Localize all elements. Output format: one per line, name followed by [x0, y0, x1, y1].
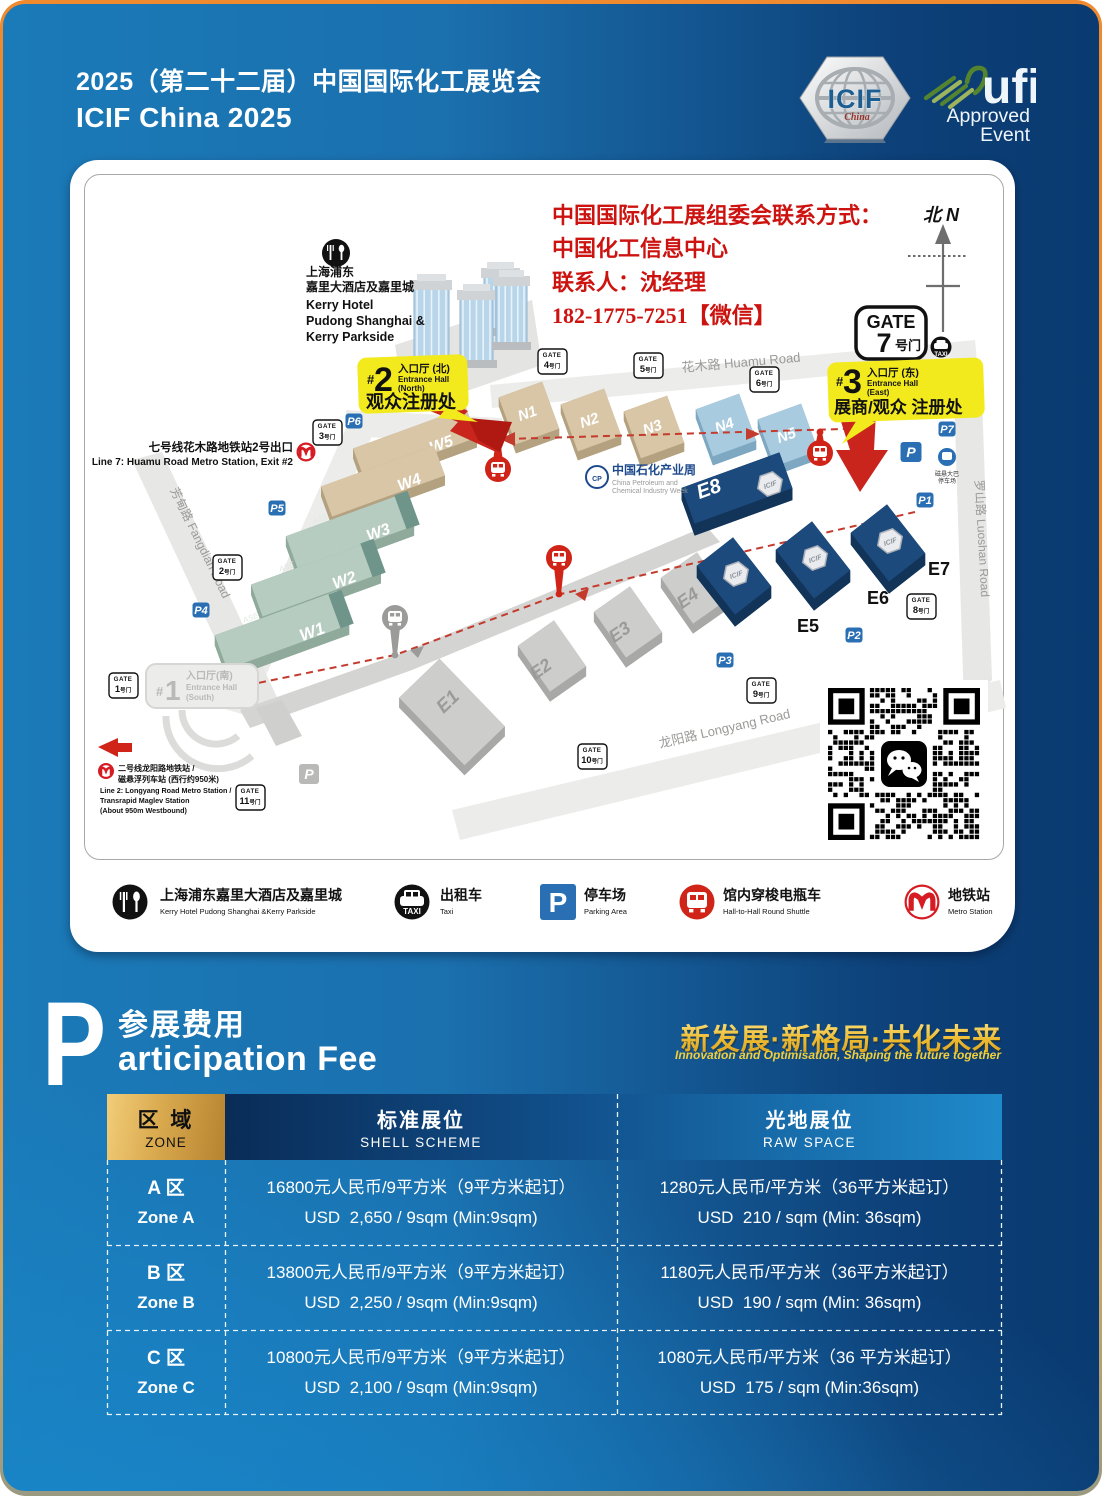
svg-text:ICIF: ICIF [828, 84, 883, 114]
svg-text:号门: 号门 [895, 338, 921, 353]
svg-text:Metro Station: Metro Station [948, 907, 993, 916]
svg-text:北 N: 北 N [923, 205, 960, 225]
svg-text:GATE: GATE [639, 356, 658, 363]
svg-text:Line 7: Huamu Road Metro Stati: Line 7: Huamu Road Metro Station, Exit #… [92, 457, 294, 468]
svg-text:#: # [156, 684, 164, 699]
svg-text:E7: E7 [928, 559, 950, 579]
svg-text:Pudong Shanghai &: Pudong Shanghai & [306, 314, 425, 328]
svg-text:P4: P4 [194, 605, 207, 617]
svg-text:TAXI: TAXI [403, 907, 421, 916]
svg-text:Kerry Hotel Pudong Shanghai &K: Kerry Hotel Pudong Shanghai &Kerry Parks… [160, 907, 316, 916]
svg-text:Kerry Hotel: Kerry Hotel [306, 298, 373, 312]
svg-text:Entrance Hall: Entrance Hall [867, 379, 918, 388]
svg-text:P5: P5 [270, 503, 284, 515]
svg-text:中国化工信息中心: 中国化工信息中心 [552, 236, 728, 261]
svg-text:GATE: GATE [752, 681, 771, 688]
svg-text:Entrance Hall: Entrance Hall [398, 375, 449, 384]
svg-text:磁悬浮列车站 (西行约950米): 磁悬浮列车站 (西行约950米) [118, 774, 219, 784]
svg-text:GATE: GATE [755, 370, 774, 377]
svg-text:P: P [304, 766, 314, 782]
svg-text:GATE: GATE [218, 558, 237, 565]
svg-text:Hall-to-Hall Round Shuttle: Hall-to-Hall Round Shuttle [723, 907, 810, 916]
svg-text:E5: E5 [797, 616, 819, 636]
svg-text:GATE: GATE [583, 747, 602, 754]
svg-text:观众注册处: 观众注册处 [366, 391, 457, 412]
svg-text:(About 950m Westbound): (About 950m Westbound) [100, 806, 188, 815]
svg-text:3: 3 [843, 363, 862, 401]
svg-text:嘉里大酒店及嘉里城: 嘉里大酒店及嘉里城 [305, 279, 414, 294]
svg-text:CP: CP [592, 476, 602, 483]
svg-text:馆内穿梭电瓶车: 馆内穿梭电瓶车 [723, 887, 821, 903]
svg-text:入口厅(南): 入口厅(南) [186, 669, 233, 682]
svg-text:Chemical Industry Week: Chemical Industry Week [612, 488, 688, 495]
svg-text:(East): (East) [867, 388, 890, 397]
svg-text:E6: E6 [867, 588, 889, 608]
svg-text:Line 2: Longyang Road Metro St: Line 2: Longyang Road Metro Station / [100, 786, 231, 795]
svg-text:China: China [844, 112, 870, 123]
svg-text:GATE: GATE [912, 597, 931, 604]
svg-text:Transrapid Maglev Station: Transrapid Maglev Station [100, 796, 189, 805]
svg-text:GATE: GATE [241, 788, 260, 795]
svg-text:Event: Event [980, 124, 1030, 146]
svg-text:二号线龙阳路地铁站 /: 二号线龙阳路地铁站 / [118, 763, 195, 773]
svg-text:入口厅 (北): 入口厅 (北) [398, 362, 450, 375]
svg-text:入口厅 (东): 入口厅 (东) [867, 366, 919, 379]
svg-text:出租车: 出租车 [440, 887, 482, 903]
svg-text:磁悬大巴: 磁悬大巴 [935, 470, 959, 478]
svg-text:GATE: GATE [318, 423, 337, 430]
svg-text:七号线花木路地铁站2号出口: 七号线花木路地铁站2号出口 [149, 440, 293, 454]
svg-text:1: 1 [165, 675, 181, 706]
svg-text:上海浦东嘉里大酒店及嘉里城: 上海浦东嘉里大酒店及嘉里城 [160, 887, 342, 903]
svg-text:地铁站: 地铁站 [948, 887, 990, 903]
svg-text:GATE: GATE [543, 352, 562, 359]
svg-text:P6: P6 [347, 416, 361, 428]
svg-text:P7: P7 [940, 424, 954, 436]
svg-text:P: P [906, 444, 916, 460]
svg-text:展商/观众 注册处: 展商/观众 注册处 [834, 397, 963, 417]
svg-text:停车场: 停车场 [584, 887, 626, 903]
svg-text:P2: P2 [847, 630, 860, 642]
svg-text:China Petroleum and: China Petroleum and [612, 480, 678, 487]
svg-text:7: 7 [876, 328, 891, 358]
svg-text:联系人：沈经理: 联系人：沈经理 [552, 270, 706, 295]
svg-text:上海浦东: 上海浦东 [306, 264, 354, 279]
svg-text:P3: P3 [718, 655, 731, 667]
svg-text:GATE: GATE [114, 676, 133, 683]
svg-text:Taxi: Taxi [440, 907, 454, 916]
svg-text:Entrance Hall: Entrance Hall [186, 683, 237, 692]
svg-text:182-1775-7251【微信】: 182-1775-7251【微信】 [552, 303, 776, 328]
svg-text:Parking Area: Parking Area [584, 907, 628, 916]
svg-text:TAXI: TAXI [934, 352, 948, 358]
svg-text:中国国际化工展组委会联系方式：: 中国国际化工展组委会联系方式： [552, 203, 882, 228]
svg-text:Kerry Parkside: Kerry Parkside [306, 330, 394, 344]
svg-text:P1: P1 [918, 495, 931, 507]
svg-text:(South): (South) [186, 693, 214, 702]
svg-text:中国石化产业周: 中国石化产业周 [612, 462, 696, 477]
svg-text:P: P [549, 887, 568, 918]
svg-text:停车场: 停车场 [938, 477, 956, 485]
